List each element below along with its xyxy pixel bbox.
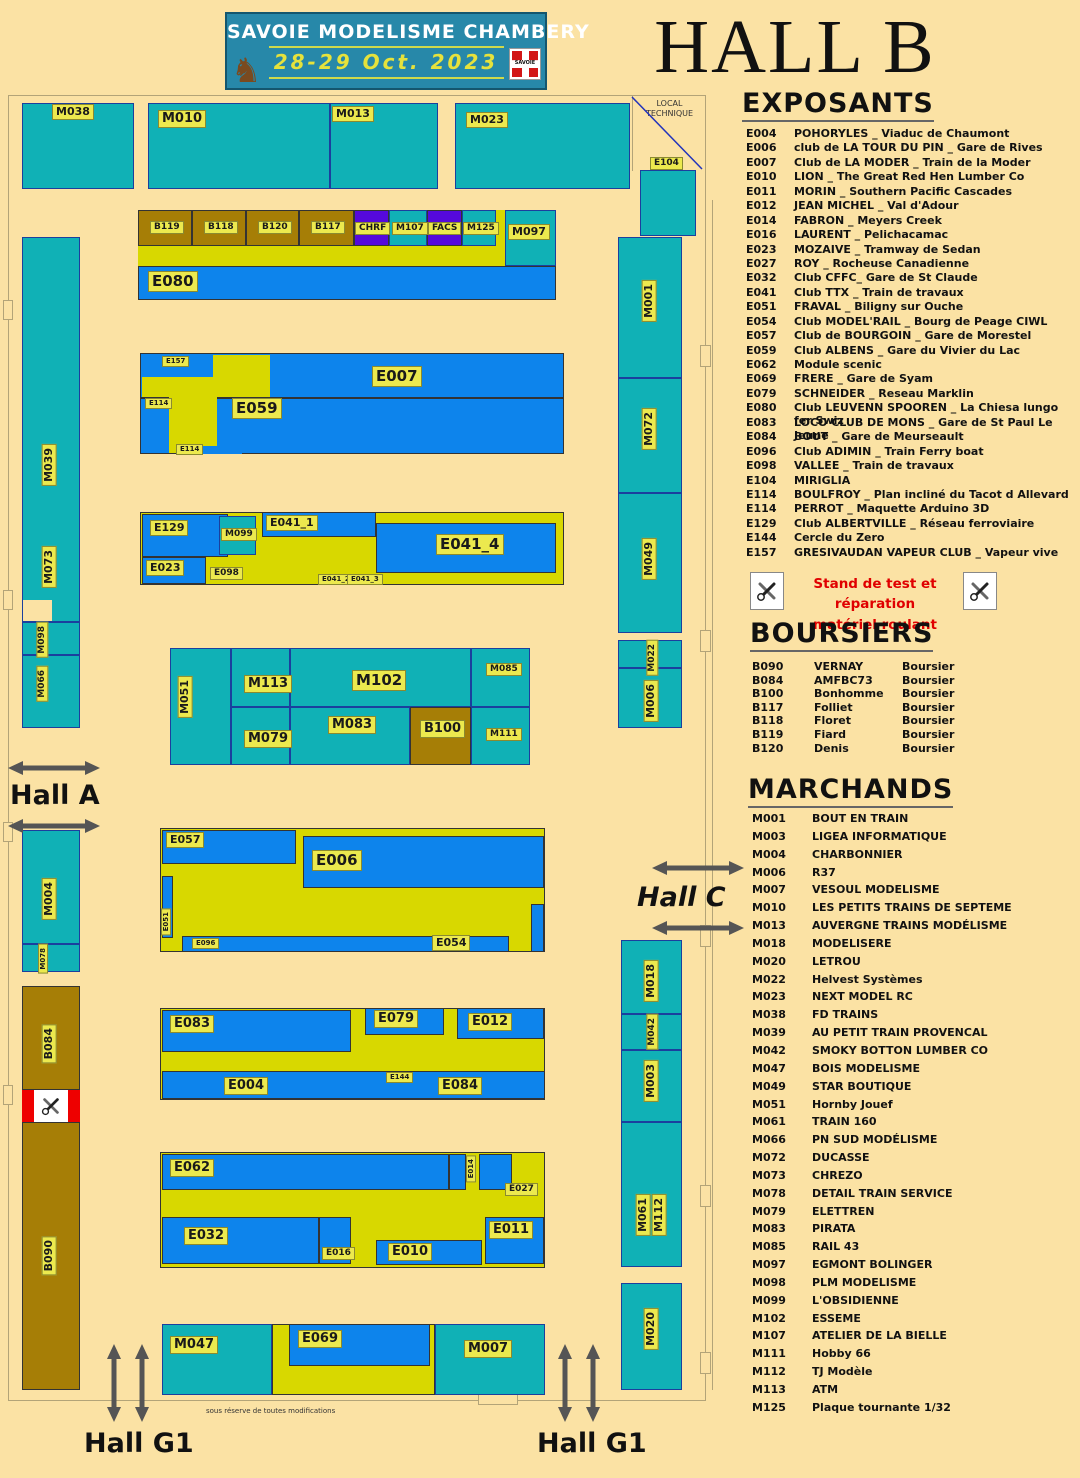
- boursier-role: Boursier: [902, 674, 954, 687]
- marchands-list: M001 BOUT EN TRAIN M003 LIGEA INFORMATIQ…: [752, 812, 1072, 1419]
- door-mark: [700, 630, 711, 652]
- marchand-row: M113 ATM: [752, 1383, 1072, 1401]
- stand-label-M047: M047: [170, 1336, 218, 1354]
- door-mark: [700, 1352, 711, 1374]
- wall-notch: [23, 600, 52, 621]
- marchand-row: M018 MODELISERE: [752, 937, 1072, 955]
- exposant-name: POHORYLES _ Viaduc de Chaumont: [794, 127, 1009, 140]
- marchand-row: M047 BOIS MODELISME: [752, 1062, 1072, 1080]
- exposant-code: E006: [746, 141, 794, 154]
- boursier-row: B100 Bonhomme Boursier: [752, 687, 1052, 701]
- exposant-name: FABRON _ Meyers Creek: [794, 214, 942, 227]
- boursier-role: Boursier: [902, 728, 954, 741]
- exposant-row: E027 ROY _ Rocheuse Canadienne: [746, 257, 1078, 271]
- marchand-name: Plaque tournante 1/32: [812, 1401, 951, 1414]
- marchand-name: STAR BOUTIQUE: [812, 1080, 911, 1093]
- marchand-code: M039: [752, 1026, 812, 1039]
- exposant-row: E057 Club de BOURGOIN _ Gare de Morestel: [746, 329, 1078, 343]
- marchand-code: M066: [752, 1133, 812, 1146]
- exposant-row: E129 Club ALBERTVILLE _ Réseau ferroviai…: [746, 517, 1078, 531]
- repair-stand-marker: [22, 1090, 80, 1122]
- boursier-row: B090 VERNAY Boursier: [752, 660, 1052, 674]
- exposant-code: E016: [746, 228, 794, 241]
- stand-label-E083: E083: [170, 1015, 214, 1033]
- exposant-name: Club ADIMIN _ Train Ferry boat: [794, 445, 984, 458]
- exposant-row: E054 Club MODEL'RAIL _ Bourg de Peage CI…: [746, 315, 1078, 329]
- marchand-code: M003: [752, 830, 812, 843]
- marchand-row: M125 Plaque tournante 1/32: [752, 1401, 1072, 1419]
- exposant-code: E032: [746, 271, 794, 284]
- marchand-name: DETAIL TRAIN SERVICE: [812, 1187, 952, 1200]
- marchand-name: TRAIN 160: [812, 1115, 877, 1128]
- stand-M047-area: [162, 1324, 272, 1395]
- exposant-name: SCHNEIDER _ Reseau Marklin: [794, 387, 974, 400]
- boursier-code: B117: [752, 701, 814, 714]
- stand-label-E032: E032: [184, 1227, 228, 1245]
- marchand-name: LES PETITS TRAINS DE SEPTEME: [812, 901, 1012, 914]
- hall-b-plan-page: SAVOIE MODELISME CHAMBERY 28-29 Oct. 202…: [0, 0, 1080, 1478]
- marchand-name: LIGEA INFORMATIQUE: [812, 830, 947, 843]
- exposant-code: E129: [746, 517, 794, 530]
- exposant-code: E012: [746, 199, 794, 212]
- marchand-row: M073 CHREZO: [752, 1169, 1072, 1187]
- hall-g1-left-arrow-2: [134, 1344, 150, 1422]
- boursier-name: AMFBC73: [814, 674, 902, 687]
- stand-label-M049: M049: [642, 538, 657, 580]
- boursier-code: B119: [752, 728, 814, 741]
- stand-label-E129: E129: [150, 520, 188, 536]
- stand-label-E041-1: E041_1: [266, 515, 318, 531]
- exposant-row: E023 MOZAIVE _ Tramway de Sedan: [746, 243, 1078, 257]
- marchand-name: R37: [812, 866, 836, 879]
- stand-label-M078: M078: [38, 944, 48, 974]
- exposant-code: E157: [746, 546, 794, 559]
- marchand-code: M004: [752, 848, 812, 861]
- exposant-row: E096 Club ADIMIN _ Train Ferry boat: [746, 445, 1078, 459]
- exposant-code: E104: [746, 474, 794, 487]
- marchand-name: CHREZO: [812, 1169, 863, 1182]
- stand-label-E027: E027: [505, 1183, 538, 1196]
- marchand-name: FD TRAINS: [812, 1008, 878, 1021]
- stand-label-E098: E098: [210, 567, 243, 580]
- marchand-code: M099: [752, 1294, 812, 1307]
- marchand-row: M023 NEXT MODEL RC: [752, 990, 1072, 1008]
- marchand-row: M079 ELETTREN: [752, 1205, 1072, 1223]
- boursier-row: B120 Denis Boursier: [752, 742, 1052, 756]
- exposant-code: E069: [746, 372, 794, 385]
- stand-label-E016: E016: [322, 1247, 355, 1260]
- exposant-code: E079: [746, 387, 794, 400]
- exposant-code: E041: [746, 286, 794, 299]
- exposant-code: E027: [746, 257, 794, 270]
- stand-label-E157: E157: [162, 356, 189, 367]
- repair-stand-line1: Stand de test et réparation: [788, 574, 962, 615]
- boursier-code: B100: [752, 687, 814, 700]
- stand-M066-area: [22, 655, 80, 728]
- exposant-row: E006 club de LA TOUR DU PIN _ Gare de Ri…: [746, 141, 1078, 155]
- door-mark: [3, 590, 13, 610]
- exposant-code: E051: [746, 300, 794, 313]
- door-mark: [478, 1394, 518, 1405]
- exposant-name: Club TTX _ Train de travaux: [794, 286, 964, 299]
- marchand-row: M051 Hornby Jouef: [752, 1098, 1072, 1116]
- exposant-code: E098: [746, 459, 794, 472]
- marchand-name: ATM: [812, 1383, 838, 1396]
- exposant-code: E080: [746, 401, 794, 414]
- aisle-yellow: [138, 246, 505, 266]
- stand-label-M083: M083: [328, 716, 376, 734]
- stand-label-M018: M018: [644, 960, 659, 1002]
- exposant-row: E059 Club ALBENS _ Gare du Vivier du Lac: [746, 344, 1078, 358]
- stand-E014-area: [449, 1154, 466, 1190]
- boursier-role: Boursier: [902, 660, 954, 673]
- exposant-row: E014 FABRON _ Meyers Creek: [746, 214, 1078, 228]
- hall-c-arrow-bottom: [652, 920, 744, 936]
- boursier-name: Denis: [814, 742, 902, 755]
- marchand-code: M010: [752, 901, 812, 914]
- marchand-code: M038: [752, 1008, 812, 1021]
- stand-label-E114: E114: [145, 398, 172, 409]
- stand-label-M079: M079: [244, 730, 292, 748]
- boursier-code: B084: [752, 674, 814, 687]
- exposant-name: Club de LA MODER _ Train de la Moder: [794, 156, 1031, 169]
- marchand-code: M125: [752, 1401, 812, 1414]
- marchand-name: TJ Modèle: [812, 1365, 873, 1378]
- exposant-row: E051 FRAVAL _ Biligny sur Ouche: [746, 300, 1078, 314]
- stand-label-E084: E084: [438, 1077, 482, 1095]
- stand-label-M042: M042: [646, 1014, 658, 1050]
- marchand-row: M007 VESOUL MODELISME: [752, 883, 1072, 901]
- marchand-row: M098 PLM MODELISME: [752, 1276, 1072, 1294]
- marchand-code: M047: [752, 1062, 812, 1075]
- stand-label-M022: M022: [646, 640, 658, 676]
- stand-label-M010: M010: [158, 110, 206, 128]
- hall-g1-right-label: Hall G1: [537, 1428, 647, 1459]
- stand-label-M066: M066: [36, 666, 48, 702]
- marchand-row: M006 R37: [752, 866, 1072, 884]
- marchand-row: M072 DUCASSE: [752, 1151, 1072, 1169]
- stand-label-M125: M125: [463, 222, 499, 235]
- marchand-code: M098: [752, 1276, 812, 1289]
- stand-label-E011: E011: [489, 1221, 533, 1239]
- marchand-name: L'OBSIDIENNE: [812, 1294, 899, 1307]
- tools-icon: [40, 1095, 62, 1117]
- marchand-row: M003 LIGEA INFORMATIQUE: [752, 830, 1072, 848]
- stand-label-M072: M072: [642, 408, 657, 450]
- savoie-logo: SAVOIE: [509, 48, 541, 80]
- marchand-name: DUCASSE: [812, 1151, 870, 1164]
- stand-label-B084: B084: [42, 1024, 57, 1063]
- stand-label-E057: E057: [166, 832, 204, 848]
- exposant-code: E054: [746, 315, 794, 328]
- exposant-code: E114: [746, 502, 794, 515]
- repair-stand-icon-left: [750, 572, 784, 610]
- hall-g1-right-arrow-1: [557, 1344, 573, 1422]
- marchand-code: M079: [752, 1205, 812, 1218]
- door-mark: [3, 300, 13, 320]
- stand-label-M112: M112: [652, 1194, 667, 1236]
- exposant-name: PERROT _ Maquette Arduino 3D: [794, 502, 989, 515]
- stand-label-B090: B090: [42, 1236, 57, 1275]
- disclaimer: sous réserve de toutes modifications: [206, 1407, 335, 1415]
- exposant-row: E007 Club de LA MODER _ Train de la Mode…: [746, 156, 1078, 170]
- exposant-code: E084: [746, 430, 794, 443]
- exposant-code: E007: [746, 156, 794, 169]
- marchand-row: M004 CHARBONNIER: [752, 848, 1072, 866]
- knight-image: ♞: [231, 54, 261, 88]
- marchand-row: M001 BOUT EN TRAIN: [752, 812, 1072, 830]
- exposant-name: BOUT _ Gare de Meurseault: [794, 430, 964, 443]
- marchand-row: M078 DETAIL TRAIN SERVICE: [752, 1187, 1072, 1205]
- stand-label-E054: E054: [432, 935, 470, 951]
- stand-label-E062: E062: [170, 1159, 214, 1177]
- stand-label-E006: E006: [312, 850, 362, 871]
- stand-M007-area: [435, 1324, 545, 1395]
- stand-M078-area: [22, 944, 80, 972]
- stand-label-E114: E114: [176, 444, 203, 455]
- stand-label-E012: E012: [468, 1013, 512, 1031]
- hall-a-arrow-bottom: [8, 818, 100, 834]
- exposant-code: E014: [746, 214, 794, 227]
- stand-label-M102: M102: [352, 670, 406, 691]
- hall-g1-left-label: Hall G1: [84, 1428, 194, 1459]
- stand-label-E007: E007: [372, 366, 422, 387]
- exposant-row: E079 SCHNEIDER _ Reseau Marklin: [746, 387, 1078, 401]
- marchand-row: M085 RAIL 43: [752, 1240, 1072, 1258]
- marchand-name: ELETTREN: [812, 1205, 875, 1218]
- marchand-code: M006: [752, 866, 812, 879]
- boursier-code: B090: [752, 660, 814, 673]
- exposant-name: ROY _ Rocheuse Canadienne: [794, 257, 969, 270]
- marchand-code: M112: [752, 1365, 812, 1378]
- marchand-code: M085: [752, 1240, 812, 1253]
- marchand-code: M111: [752, 1347, 812, 1360]
- exposant-code: E062: [746, 358, 794, 371]
- boursier-row: B084 AMFBC73 Boursier: [752, 674, 1052, 688]
- stand-label-M085: M085: [486, 663, 522, 676]
- stand-label-E051: E051: [161, 908, 171, 935]
- stand-label-M113: M113: [244, 675, 292, 693]
- marchand-row: M083 PIRATA: [752, 1222, 1072, 1240]
- hall-g1-right-arrow-2: [585, 1344, 601, 1422]
- marchand-row: M112 TJ Modèle: [752, 1365, 1072, 1383]
- repair-stand-icon-right: [963, 572, 997, 610]
- stand-label-E144: E144: [386, 1072, 413, 1083]
- stand-label-CHRF: CHRF: [355, 222, 390, 235]
- banner-divider-bottom: [269, 77, 504, 79]
- event-dates: 28-29 Oct. 2023: [227, 50, 545, 74]
- marchand-name: BOIS MODELISME: [812, 1062, 920, 1075]
- marchand-row: M111 Hobby 66: [752, 1347, 1072, 1365]
- boursiers-title: BOURSIERS: [750, 618, 933, 652]
- exposant-name: Club de BOURGOIN _ Gare de Morestel: [794, 329, 1031, 342]
- exposant-name: BOULFROY _ Plan incliné du Tacot d Allev…: [794, 488, 1069, 501]
- marchand-row: M038 FD TRAINS: [752, 1008, 1072, 1026]
- marchand-name: AUVERGNE TRAINS MODÉLISME: [812, 919, 1007, 932]
- boursier-role: Boursier: [902, 687, 954, 700]
- marchand-name: CHARBONNIER: [812, 848, 903, 861]
- exposant-code: E057: [746, 329, 794, 342]
- marchand-code: M023: [752, 990, 812, 1003]
- stand-label-E041-3: E041_3: [347, 574, 383, 585]
- marchand-row: M102 ESSEME: [752, 1312, 1072, 1330]
- savoie-logo-text: SAVOIE: [510, 60, 540, 67]
- marchand-row: M039 AU PETIT TRAIN PROVENCAL: [752, 1026, 1072, 1044]
- aisle-yellow: [142, 377, 213, 397]
- stand-label-M097: M097: [508, 224, 550, 240]
- stand-E004-E084-strip: [162, 1071, 545, 1099]
- exposant-name: LION _ The Great Red Hen Lumber Co: [794, 170, 1024, 183]
- exposant-row: E144 Cercle du Zero: [746, 531, 1078, 545]
- exposant-row: E011 MORIN _ Southern Pacific Cascades: [746, 185, 1078, 199]
- stand-label-M001: M001: [642, 280, 657, 322]
- marchand-name: Hobby 66: [812, 1347, 871, 1360]
- exposant-code: E096: [746, 445, 794, 458]
- stand-E104-area: [640, 170, 696, 236]
- exposant-row: E010 LION _ The Great Red Hen Lumber Co: [746, 170, 1078, 184]
- exposant-code: E011: [746, 185, 794, 198]
- marchand-row: M049 STAR BOUTIQUE: [752, 1080, 1072, 1098]
- exposant-code: E059: [746, 344, 794, 357]
- stand-corner-notch: [531, 904, 544, 952]
- exposant-row: E062 Module scenic: [746, 358, 1078, 372]
- boursier-name: VERNAY: [814, 660, 902, 673]
- event-title: SAVOIE MODELISME CHAMBERY: [227, 21, 545, 43]
- exposant-row: E157 GRESIVAUDAN VAPEUR CLUB _ Vapeur vi…: [746, 546, 1078, 560]
- marchand-name: Helvest Systèmes: [812, 973, 923, 986]
- stand-label-E079: E079: [374, 1010, 418, 1028]
- exposant-row: E032 Club CFFC_ Gare de St Claude: [746, 271, 1078, 285]
- marchand-code: M051: [752, 1098, 812, 1111]
- exposant-code: E083: [746, 416, 794, 429]
- boursier-role: Boursier: [902, 742, 954, 755]
- exposant-name: GRESIVAUDAN VAPEUR CLUB _ Vapeur vive: [794, 546, 1058, 559]
- boursier-code: B120: [752, 742, 814, 755]
- marchand-code: M078: [752, 1187, 812, 1200]
- boursier-row: B118 Floret Boursier: [752, 714, 1052, 728]
- stand-label-M013: M013: [332, 106, 374, 122]
- stand-E114-area: [200, 446, 242, 454]
- stand-label-M111: M111: [486, 728, 522, 741]
- exposant-code: E004: [746, 127, 794, 140]
- marchand-name: ESSEME: [812, 1312, 861, 1325]
- exposant-row: E012 JEAN MICHEL _ Val d'Adour: [746, 199, 1078, 213]
- page-title: HALL B: [635, 0, 955, 95]
- stand-label-M007: M007: [464, 1340, 512, 1358]
- stand-label-B118: B118: [204, 221, 238, 234]
- stand-label-FACS: FACS: [428, 222, 461, 235]
- marchand-code: M097: [752, 1258, 812, 1271]
- marchand-name: SMOKY BOTTON LUMBER CO: [812, 1044, 988, 1057]
- marchand-name: ATELIER DE LA BIELLE: [812, 1329, 947, 1342]
- marchand-row: M010 LES PETITS TRAINS DE SEPTEME: [752, 901, 1072, 919]
- door-mark: [700, 1185, 711, 1207]
- stand-label-E059: E059: [232, 398, 282, 419]
- exposants-title: EXPOSANTS: [742, 88, 934, 122]
- stand-label-B117: B117: [311, 221, 345, 234]
- stand-label-M073: M073: [42, 546, 57, 588]
- marchand-name: NEXT MODEL RC: [812, 990, 913, 1003]
- stand-label-E014: E014: [466, 1155, 476, 1182]
- marchand-code: M107: [752, 1329, 812, 1342]
- exposant-code: E114: [746, 488, 794, 501]
- stand-label-E104: E104: [650, 157, 683, 170]
- hall-g1-left-arrow-1: [106, 1344, 122, 1422]
- stand-label-E023: E023: [146, 560, 184, 576]
- exposant-name: VALLEE _ Train de travaux: [794, 459, 954, 472]
- stand-label-E080: E080: [148, 271, 198, 292]
- exposant-code: E023: [746, 243, 794, 256]
- stand-label-M023: M023: [466, 112, 508, 128]
- hall-a-label: Hall A: [10, 780, 100, 811]
- marchand-name: MODELISERE: [812, 937, 891, 950]
- marchands-title: MARCHANDS: [748, 774, 953, 808]
- hall-c-arrow-top: [652, 860, 744, 876]
- stand-label-M038: M038: [52, 104, 94, 120]
- marchand-row: M099 L'OBSIDIENNE: [752, 1294, 1072, 1312]
- marchand-code: M113: [752, 1383, 812, 1396]
- door-mark: [3, 1085, 13, 1105]
- exposant-row: E041 Club TTX _ Train de travaux: [746, 286, 1078, 300]
- stand-label-M098: M098: [36, 622, 48, 658]
- boursier-name: Floret: [814, 714, 902, 727]
- stand-M085-area: [471, 648, 530, 707]
- stand-label-B119: B119: [150, 221, 184, 234]
- marchand-row: M042 SMOKY BOTTON LUMBER CO: [752, 1044, 1072, 1062]
- exposant-name: FRAVAL _ Biligny sur Ouche: [794, 300, 963, 313]
- marchand-name: Hornby Jouef: [812, 1098, 893, 1111]
- tools-icon: [755, 579, 779, 603]
- stand-label-E096: E096: [192, 938, 219, 949]
- marchand-code: M083: [752, 1222, 812, 1235]
- hall-a-arrow-top: [8, 760, 100, 776]
- marchand-row: M097 EGMONT BOLINGER: [752, 1258, 1072, 1276]
- tools-icon: [968, 579, 992, 603]
- marchand-row: M020 LETROU: [752, 955, 1072, 973]
- boursier-role: Boursier: [902, 701, 954, 714]
- stand-label-M039: M039: [42, 444, 57, 486]
- marchand-row: M061 TRAIN 160: [752, 1115, 1072, 1133]
- aisle-yellow: [213, 355, 270, 397]
- marchand-code: M007: [752, 883, 812, 896]
- marchand-name: VESOUL MODELISME: [812, 883, 940, 896]
- stand-label-B100: B100: [420, 720, 465, 738]
- marchand-code: M020: [752, 955, 812, 968]
- boursier-code: B118: [752, 714, 814, 727]
- marchand-code: M042: [752, 1044, 812, 1057]
- exposant-name: Club CFFC_ Gare de St Claude: [794, 271, 978, 284]
- stand-label-M004: M004: [42, 878, 57, 920]
- exposant-name: LAURENT _ Pelichacamac: [794, 228, 948, 241]
- exposant-name: Club MODEL'RAIL _ Bourg de Peage CIWL: [794, 315, 1047, 328]
- marchand-row: M066 PN SUD MODÉLISME: [752, 1133, 1072, 1151]
- boursiers-list: B090 VERNAY Boursier B084 AMFBC73 Boursi…: [752, 660, 1052, 755]
- exposant-row: E004 POHORYLES _ Viaduc de Chaumont: [746, 127, 1078, 141]
- marchand-row: M013 AUVERGNE TRAINS MODÉLISME: [752, 919, 1072, 937]
- exposant-name: FRERE _ Gare de Syam: [794, 372, 933, 385]
- exposant-row: E114 BOULFROY _ Plan incliné du Tacot d …: [746, 488, 1078, 502]
- stand-label-M003: M003: [644, 1060, 659, 1102]
- boursier-role: Boursier: [902, 714, 954, 727]
- exposant-code: E144: [746, 531, 794, 544]
- marchand-code: M072: [752, 1151, 812, 1164]
- outer-corridor-wall: [712, 200, 713, 1390]
- stand-E080-area: [138, 266, 556, 300]
- boursier-name: Folliet: [814, 701, 902, 714]
- stand-label-M051: M051: [178, 676, 193, 718]
- marchand-row: M022 Helvest Systèmes: [752, 973, 1072, 991]
- hall-c-label: Hall C: [637, 882, 726, 913]
